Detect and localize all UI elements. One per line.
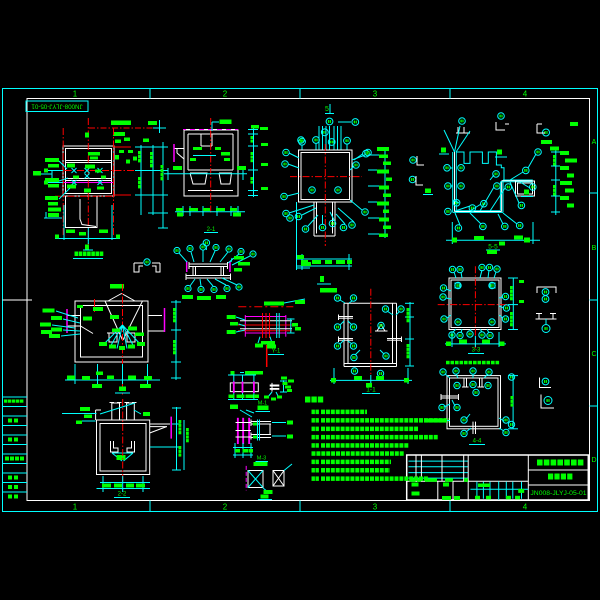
svg-text:4: 4	[523, 90, 528, 99]
svg-text:5-5: 5-5	[488, 244, 498, 251]
svg-text:D: D	[591, 457, 596, 464]
svg-text:2: 2	[223, 503, 228, 512]
svg-text:Y-1: Y-1	[272, 349, 281, 355]
svg-text:JN008-JLYJ-05-01: JN008-JLYJ-05-01	[31, 103, 83, 110]
svg-text:4: 4	[523, 503, 528, 512]
svg-text:3: 3	[373, 503, 378, 512]
svg-text:1: 1	[73, 503, 78, 512]
svg-text:A: A	[592, 139, 597, 146]
svg-text:2-2: 2-2	[118, 492, 127, 498]
svg-text:1: 1	[73, 90, 78, 99]
svg-text:3: 3	[373, 90, 378, 99]
svg-text:5: 5	[325, 106, 329, 113]
svg-text:2: 2	[223, 90, 228, 99]
svg-text:B: B	[592, 245, 597, 252]
svg-text:JN008-JLYJ-05-01: JN008-JLYJ-05-01	[530, 490, 586, 497]
svg-text:M-3: M-3	[257, 456, 266, 462]
svg-text:3-3: 3-3	[472, 348, 481, 354]
svg-text:C: C	[591, 351, 596, 358]
svg-text:4-4: 4-4	[473, 439, 482, 445]
svg-text:1-1: 1-1	[366, 387, 376, 394]
